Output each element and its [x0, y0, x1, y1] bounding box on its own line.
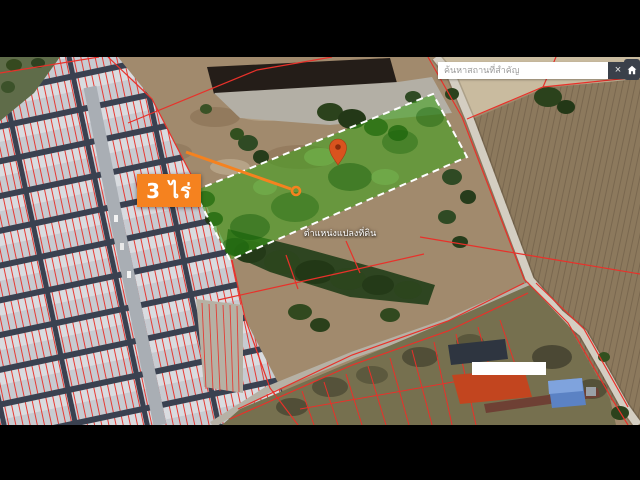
- satellite-imagery: [0, 57, 640, 425]
- search-input[interactable]: [438, 62, 608, 79]
- white-cover-bar: [472, 362, 546, 375]
- home-button[interactable]: [624, 59, 640, 80]
- home-icon: [627, 65, 637, 75]
- bottom-letterbox: [0, 425, 640, 480]
- area-label: 3 ไร่: [137, 174, 201, 207]
- close-icon: ×: [615, 65, 621, 76]
- satellite-map[interactable]: 3 ไร่ ตำแหน่งแปลงที่ดิน: [0, 57, 640, 425]
- search-bar: ×: [438, 62, 628, 79]
- screenshot-root: 3 ไร่ ตำแหน่งแปลงที่ดิน ×: [0, 0, 640, 480]
- top-letterbox: [0, 0, 640, 57]
- pin-caption: ตำแหน่งแปลงที่ดิน: [268, 226, 412, 240]
